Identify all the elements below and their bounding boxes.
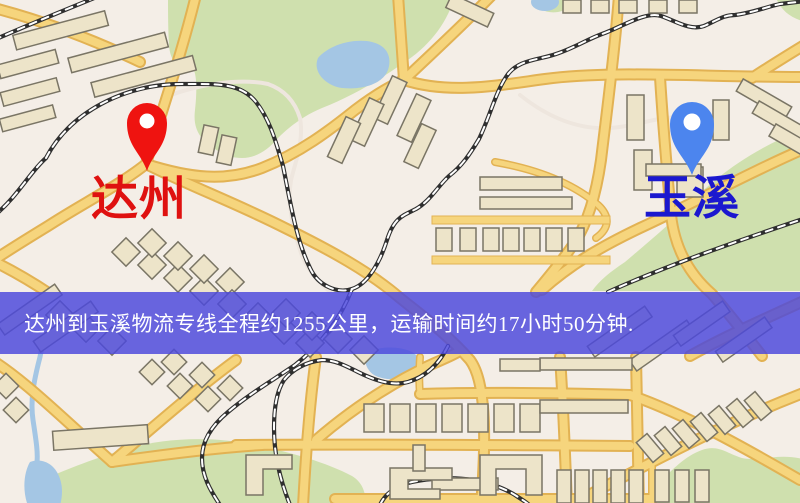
location-pin-icon: [666, 99, 718, 179]
info-banner: 达州到玉溪物流专线全程约1255公里，运输时间约17小时50分钟.: [0, 292, 800, 354]
map-canvas: [0, 0, 800, 503]
marker-label-dazhou: 达州: [91, 177, 187, 224]
location-pin-icon: [123, 100, 171, 176]
map-view: 达州到玉溪物流专线全程约1255公里，运输时间约17小时50分钟. 达州 玉溪: [0, 0, 800, 503]
marker-label-yuxi: 玉溪: [644, 176, 740, 223]
banner-text: 达州到玉溪物流专线全程约1255公里，运输时间约17小时50分钟.: [0, 308, 634, 338]
marker-dazhou[interactable]: [123, 100, 171, 176]
marker-yuxi[interactable]: [666, 99, 718, 179]
